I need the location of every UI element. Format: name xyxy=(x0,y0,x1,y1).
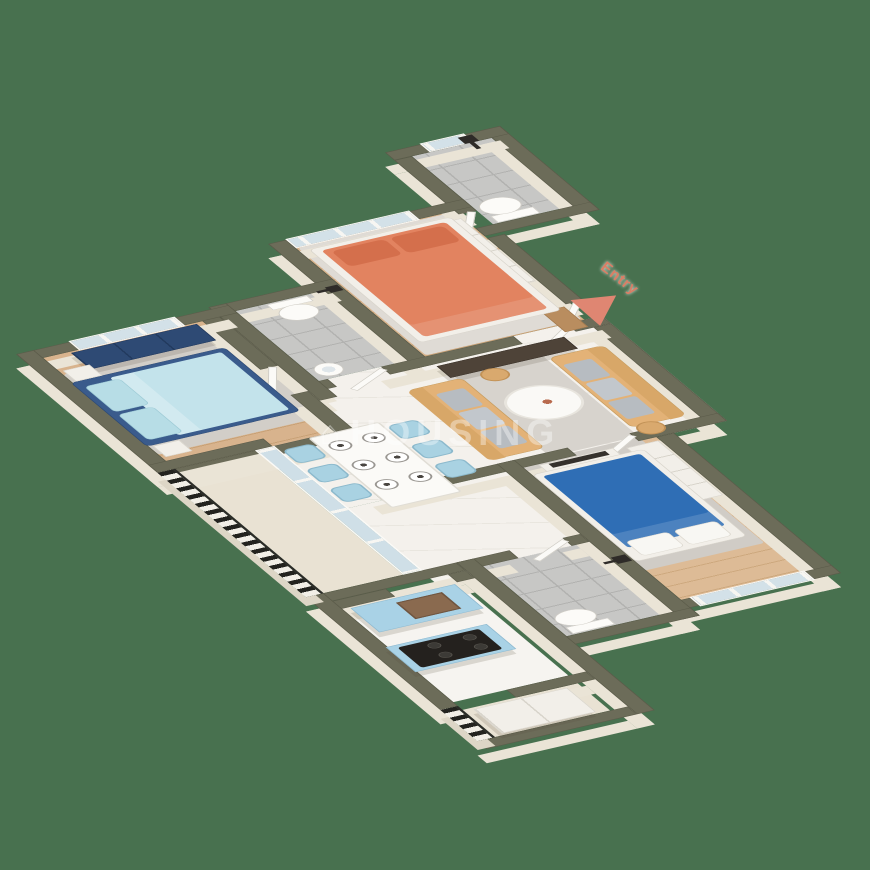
watermark: ⌂ HOUSING xyxy=(220,412,660,454)
apartment-plan xyxy=(0,126,870,787)
watermark-text: HOUSING xyxy=(350,412,560,454)
floor-plan-scene: ⌂ HOUSING Entry xyxy=(0,0,870,870)
house-icon: ⌂ xyxy=(320,414,341,453)
